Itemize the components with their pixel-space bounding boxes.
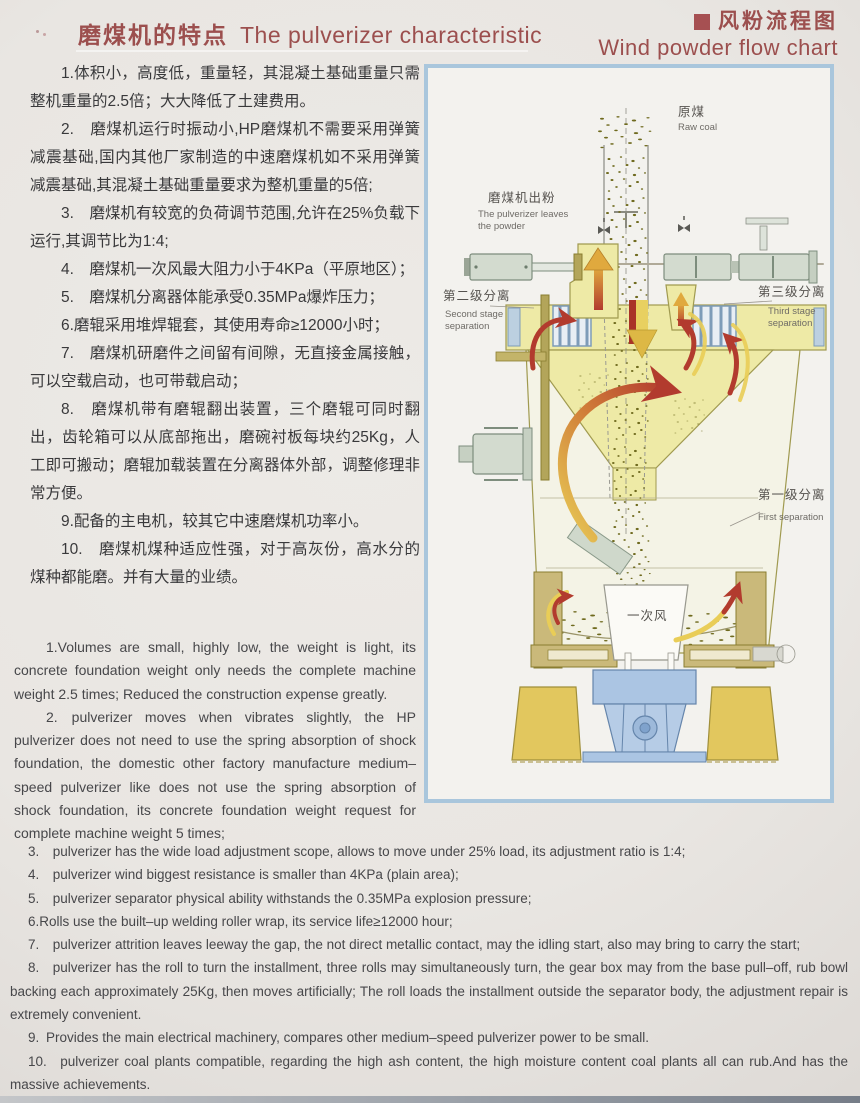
feature-en-3: 3. pulverizer has the wide load adjustme… bbox=[10, 840, 848, 863]
third-stage-label-en2: separation bbox=[768, 318, 812, 329]
powder-out-label-en1: The pulverizer leaves bbox=[478, 209, 569, 220]
diagram-legend-title: 风粉流程图 Wind powder flow chart bbox=[598, 10, 838, 60]
first-stage-label-en: First separation bbox=[758, 512, 823, 523]
feature-zh-2: 2. 磨煤机运行时振动小,HP磨煤机不需要采用弹簧减震基础,国内其他厂家制造的中… bbox=[30, 116, 420, 200]
gearbox bbox=[583, 670, 706, 762]
primary-air-label-zh: 一次风 bbox=[627, 609, 668, 623]
pulverizer-cross-section-diagram: 原煤 Raw coal 磨煤机出粉 The pulverizer leaves … bbox=[428, 68, 830, 799]
feature-zh-4: 4. 磨煤机一次风最大阻力小于4KPa（平原地区）； bbox=[30, 256, 420, 284]
feature-zh-8: 8. 磨煤机带有磨辊翻出装置，三个磨辊可同时翻出，齿轮箱可以从底部拖出，磨碗衬板… bbox=[30, 396, 420, 508]
page-title: 磨煤机的特点The pulverizer characteristic bbox=[78, 16, 542, 50]
red-square-icon bbox=[694, 14, 710, 30]
third-stage-label-en1: Third stage bbox=[768, 306, 816, 317]
feature-en-8: 8. pulverizer has the roll to turn the i… bbox=[10, 956, 848, 1026]
brochure-page: 磨煤机的特点The pulverizer characteristic 风粉流程… bbox=[0, 0, 860, 1103]
header-underline bbox=[76, 50, 528, 52]
valve-icons bbox=[598, 216, 690, 234]
features-list-zh: 1.体积小，高度低，重量轻，其混凝土基础重量只需整机重量的2.5倍；大大降低了土… bbox=[30, 60, 420, 592]
page-bottom-edge bbox=[0, 1096, 860, 1103]
features-list-en-left: 1.Volumes are small, highly low, the wei… bbox=[14, 636, 416, 846]
page-title-en: The pulverizer characteristic bbox=[240, 22, 542, 48]
feature-zh-5: 5. 磨煤机分离器体能承受0.35MPa爆炸压力； bbox=[30, 284, 420, 312]
scan-artifact bbox=[36, 30, 39, 33]
feature-zh-3: 3. 磨煤机有较宽的负荷调节范围,允许在25%负载下运行,其调节比为1:4; bbox=[30, 200, 420, 256]
feature-zh-7: 7. 磨煤机研磨件之间留有间隙，无直接金属接触，可以空载启动，也可带载启动； bbox=[30, 340, 420, 396]
feature-zh-10: 10. 磨煤机煤种适应性强，对于高灰份，高水分的煤种都能磨。并有大量的业绩。 bbox=[30, 536, 420, 592]
powder-out-label-zh: 磨煤机出粉 bbox=[488, 190, 556, 205]
feature-en-5: 5. pulverizer separator physical ability… bbox=[10, 887, 848, 910]
second-stage-label-en2: separation bbox=[445, 321, 489, 332]
feature-en-1: 1.Volumes are small, highly low, the wei… bbox=[14, 636, 416, 706]
feature-en-6: 6.Rolls use the built–up welding roller … bbox=[10, 910, 848, 933]
flow-chart-panel: 原煤 Raw coal 磨煤机出粉 The pulverizer leaves … bbox=[424, 64, 834, 803]
feature-zh-6: 6.磨辊采用堆焊辊套，其使用寿命≥12000小时； bbox=[30, 312, 420, 340]
feature-zh-1: 1.体积小，高度低，重量轻，其混凝土基础重量只需整机重量的2.5倍；大大降低了土… bbox=[30, 60, 420, 116]
second-stage-label-en1: Second stage bbox=[445, 309, 503, 320]
raw-coal-label-en: Raw coal bbox=[678, 122, 717, 133]
feature-en-10: 10. pulverizer coal plants compatible, r… bbox=[10, 1050, 848, 1097]
powder-out-label-en2: the powder bbox=[478, 221, 525, 232]
first-stage-label-zh: 第一级分离 bbox=[758, 487, 826, 502]
features-list-en-full: 3. pulverizer has the wide load adjustme… bbox=[10, 840, 848, 1096]
raw-coal-label-zh: 原煤 bbox=[678, 105, 705, 119]
feature-zh-9: 9.配备的主电机，较其它中速磨煤机功率小。 bbox=[30, 508, 420, 536]
second-stage-label-zh: 第二级分离 bbox=[443, 288, 511, 303]
legend-title-en: Wind powder flow chart bbox=[598, 36, 838, 60]
third-stage-label-zh: 第三级分离 bbox=[758, 284, 826, 299]
legend-title-zh: 风粉流程图 bbox=[718, 10, 838, 34]
feature-en-7: 7. pulverizer attrition leaves leeway th… bbox=[10, 933, 848, 956]
feature-en-2: 2. pulverizer moves when vibrates slight… bbox=[14, 706, 416, 846]
page-title-zh: 磨煤机的特点 bbox=[78, 22, 228, 48]
feature-en-4: 4. pulverizer wind biggest resistance is… bbox=[10, 863, 848, 886]
feature-en-9: 9. Provides the main electrical machiner… bbox=[10, 1026, 848, 1049]
hydraulic-cylinder-left bbox=[464, 254, 582, 280]
